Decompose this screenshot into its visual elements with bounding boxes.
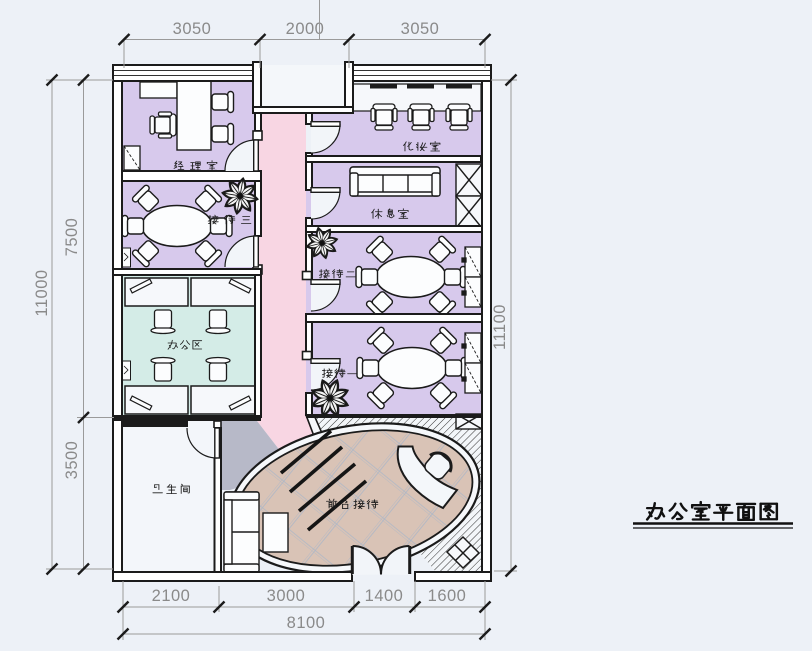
svg-text:8100: 8100 xyxy=(287,614,326,632)
svg-text:2100: 2100 xyxy=(152,587,191,605)
svg-text:3050: 3050 xyxy=(401,20,440,38)
svg-text:2000: 2000 xyxy=(286,20,325,38)
svg-text:3000: 3000 xyxy=(267,587,306,605)
svg-text:1400: 1400 xyxy=(365,587,404,605)
svg-text:1600: 1600 xyxy=(428,587,467,605)
svg-text:11000: 11000 xyxy=(33,269,51,316)
svg-text:3500: 3500 xyxy=(63,441,81,480)
svg-text:7500: 7500 xyxy=(63,218,81,257)
svg-text:3050: 3050 xyxy=(173,20,212,38)
svg-text:11100: 11100 xyxy=(491,304,509,350)
